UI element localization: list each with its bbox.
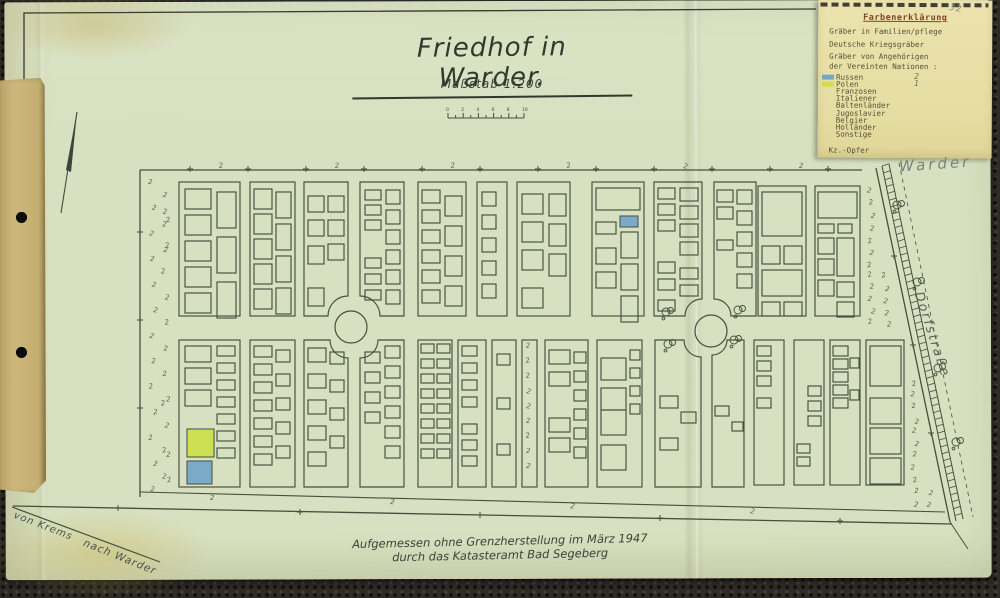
- grave-block-outline: [655, 340, 701, 487]
- road-hatch-tick: [886, 184, 893, 186]
- grave-plot: [482, 215, 496, 229]
- legend-handwritten-count: 1: [914, 80, 919, 87]
- grave-block-outline: [830, 340, 860, 485]
- bush-symbol: 2: [868, 198, 874, 207]
- grave-plot: [217, 346, 235, 356]
- grave-plot: [658, 262, 675, 273]
- grave-plot: [818, 192, 857, 218]
- bush-symbol: 2: [153, 306, 159, 315]
- grave-plot: [818, 224, 834, 233]
- grave-plot: [574, 428, 586, 439]
- road-edge-tail: [950, 522, 968, 549]
- grave-plot: [850, 358, 859, 368]
- scale-label: Maßstab 1:200: [352, 77, 632, 91]
- tree-symbol: [952, 447, 955, 450]
- grave-plot-polen_yellow: [187, 429, 214, 457]
- grave-plot: [276, 288, 291, 314]
- grave-plot: [680, 268, 698, 279]
- bush-symbol: 2: [870, 212, 877, 221]
- bush-symbol: 2: [870, 307, 876, 316]
- road-hatch-line: [882, 166, 956, 521]
- road-hatch-tick: [955, 513, 962, 515]
- grave-plot: [601, 445, 626, 470]
- road-hatch-tick: [895, 225, 902, 227]
- grave-plot: [217, 380, 235, 390]
- grave-plot: [422, 190, 440, 203]
- grave-plot: [717, 240, 733, 250]
- grave-plot: [601, 388, 626, 410]
- grave-plot: [217, 363, 235, 373]
- grave-plot: [330, 408, 344, 420]
- grave-plot: [217, 282, 236, 318]
- legend-group-heading: Gräber von Angehörigen: [829, 53, 992, 62]
- road-hatch-tick: [888, 191, 895, 193]
- grave-plot: [217, 431, 235, 441]
- grave-plot: [837, 238, 854, 276]
- grave-plot: [185, 346, 211, 362]
- bush-symbol: 2: [866, 261, 872, 270]
- grave-plot: [308, 288, 324, 306]
- grave-plot: [385, 446, 400, 458]
- road-hatch-tick: [929, 390, 936, 392]
- grave-plot: [660, 396, 678, 408]
- bush-symbol: 2: [164, 421, 171, 430]
- road-hatch-tick: [885, 178, 892, 180]
- grave-plot: [818, 238, 834, 254]
- grave-plot: [254, 264, 272, 284]
- bush-symbol: 2: [162, 208, 168, 216]
- grave-plot: [497, 398, 510, 409]
- grave-plot: [385, 426, 400, 438]
- grave-plot: [217, 237, 236, 273]
- grave-plot: [421, 389, 434, 398]
- grave-plot: [365, 372, 380, 383]
- tree-symbol: [736, 336, 742, 342]
- grave-plot: [386, 290, 400, 304]
- legend-entry-family-graves: Gräber in Familien/pflege: [829, 28, 992, 37]
- bush-symbol: 2: [914, 487, 920, 495]
- bush-symbol: 2: [162, 370, 168, 378]
- road-hatch-tick: [893, 219, 900, 221]
- grave-plot: [833, 398, 848, 408]
- grave-plot: [717, 207, 733, 219]
- grave-block-outline: [360, 340, 404, 487]
- grave-plot: [797, 457, 810, 466]
- grave-block-outline: [545, 340, 588, 487]
- grave-plot: [630, 350, 640, 360]
- grave-plot: [437, 419, 450, 428]
- road-hatch-tick: [931, 397, 938, 399]
- grave-plot: [421, 359, 434, 368]
- grave-plot: [254, 214, 272, 234]
- grave-plot: [601, 358, 626, 380]
- grave-plot: [784, 302, 802, 316]
- grave-plot: [680, 224, 698, 237]
- grave-plot: [385, 406, 400, 418]
- grave-plot: [462, 456, 477, 466]
- grave-plot: [462, 424, 477, 434]
- tree-symbol: [958, 438, 964, 444]
- grave-plot: [276, 350, 290, 362]
- bush-symbol: 2: [164, 318, 170, 327]
- tree-symbol: [662, 308, 670, 316]
- bush-symbol: 2: [525, 431, 531, 440]
- grave-plot: [276, 374, 290, 386]
- grave-plot: [437, 404, 450, 413]
- legend-entry-label: Sonstige: [836, 130, 872, 139]
- road-hatch-tick: [906, 280, 913, 282]
- grave-plot: [386, 210, 400, 224]
- grave-block-outline: [866, 340, 904, 485]
- bush-symbol: 2: [525, 356, 532, 365]
- bush-symbol: 2: [334, 162, 340, 170]
- bush-symbol: 2: [750, 507, 756, 516]
- grave-plot: [757, 376, 771, 386]
- grave-plot: [837, 302, 854, 317]
- bush-symbol: 2: [570, 502, 576, 511]
- scale-bar-number: 10: [522, 107, 528, 113]
- grave-plot: [308, 400, 326, 414]
- grave-plot: [497, 444, 510, 455]
- legend-swatch: [822, 81, 834, 86]
- grave-plot: [601, 410, 626, 435]
- grave-plot: [422, 270, 440, 283]
- scale-bar-number: 6: [492, 107, 495, 113]
- road-hatch-tick: [932, 404, 939, 406]
- grave-plot: [445, 196, 462, 216]
- bush-symbol: 2: [867, 317, 874, 326]
- survey-crosses: [115, 166, 934, 524]
- bush-symbol: 2: [151, 204, 157, 213]
- grave-plot: [185, 293, 211, 313]
- boundary-bottom-inner: [140, 492, 945, 512]
- scale-bar-number: 0: [446, 107, 449, 113]
- road-hatch-tick: [889, 198, 896, 200]
- bush-symbol: 2: [912, 475, 919, 484]
- grave-plot: [365, 290, 381, 300]
- grave-plot: [850, 390, 859, 400]
- grave-plot: [680, 242, 698, 255]
- bush-symbol: 2: [151, 281, 158, 290]
- bush-symbol: 2: [885, 285, 891, 293]
- grave-plot: [658, 204, 675, 215]
- bush-symbol: 2: [881, 271, 888, 280]
- bush-symbol: 2: [565, 161, 572, 170]
- grave-plot: [630, 368, 640, 378]
- road-hatch-tick: [902, 260, 909, 262]
- grave-plot: [437, 389, 450, 398]
- grave-plot: [365, 412, 380, 423]
- grave-plot: [185, 368, 211, 384]
- grave-plot: [808, 416, 821, 426]
- tree-symbols: [662, 201, 964, 450]
- grave-plot: [757, 346, 771, 356]
- grave-plot: [276, 446, 290, 458]
- grave-plot: [330, 436, 344, 448]
- bush-symbol: 2: [390, 498, 396, 506]
- road-hatch-tick: [901, 253, 908, 255]
- road-hatch-tick: [945, 465, 952, 467]
- bush-symbol: 2: [915, 418, 920, 426]
- road-hatch-tick: [882, 164, 889, 166]
- grave-plot: [185, 390, 211, 406]
- grave-plot: [833, 359, 848, 369]
- tree-symbol: [730, 345, 733, 348]
- road-hatch-tick: [942, 452, 949, 454]
- grave-plot: [658, 300, 675, 311]
- bush-symbol: 2: [153, 460, 159, 469]
- road-hatch-tick: [905, 273, 912, 275]
- grave-plot: [497, 354, 510, 365]
- grave-plot: [421, 344, 434, 353]
- grave-plot: [630, 386, 640, 396]
- grave-plot: [422, 250, 440, 263]
- bush-symbol: 2: [914, 440, 920, 449]
- tree-symbol: [740, 306, 746, 312]
- grave-plot: [838, 224, 852, 233]
- grave-plot: [365, 205, 381, 215]
- road-hatch-tick: [938, 431, 945, 433]
- grave-plot: [308, 246, 324, 264]
- road-hatch-tick: [921, 349, 928, 351]
- road-hatch-tick: [943, 458, 950, 460]
- scale-bar-number: 8: [507, 107, 510, 113]
- road-hatch-tick: [899, 246, 906, 248]
- grave-plot: [308, 452, 326, 466]
- grave-plot: [328, 220, 344, 236]
- bush-symbol: 2: [910, 463, 915, 471]
- grave-plot: [445, 256, 462, 276]
- grave-plot: [574, 390, 586, 401]
- grave-plot: [482, 261, 496, 275]
- grave-plot: [422, 290, 440, 303]
- bush-symbol: 2: [869, 249, 875, 258]
- grave-plot: [254, 382, 272, 393]
- bush-symbol: 2: [148, 433, 154, 442]
- road-hatch-tick: [898, 239, 905, 241]
- bush-symbol: 2: [799, 162, 804, 170]
- grave-plot: [737, 190, 752, 204]
- legend-note: Farbenerklärung Gräber in Familien/pfleg…: [818, 0, 993, 158]
- grave-plot: [217, 448, 235, 458]
- bush-symbol: 2: [166, 475, 173, 484]
- grave-plot: [421, 449, 434, 458]
- grave-plot: [386, 190, 400, 204]
- bush-symbol: 2: [151, 357, 156, 365]
- tree-symbol: [952, 438, 960, 446]
- grave-plot: [462, 380, 477, 390]
- grave-block-outline: [304, 182, 348, 316]
- roundabout-circle: [335, 311, 367, 343]
- grave-block-outline: [794, 340, 824, 485]
- grave-plot: [308, 220, 324, 236]
- road-hatch-tick: [891, 205, 898, 207]
- grave-plot: [254, 239, 272, 259]
- bush-symbol: 2: [867, 270, 874, 279]
- tree-symbol: [899, 201, 905, 207]
- tree-symbol: [913, 278, 921, 286]
- grave-block-outline: [360, 182, 404, 316]
- bush-symbol: 2: [910, 390, 915, 398]
- grave-plot: [462, 397, 477, 407]
- road-hatch-tick: [903, 267, 910, 269]
- grave-plot: [522, 222, 543, 242]
- grave-plot: [386, 230, 400, 244]
- grave-plot: [421, 404, 434, 413]
- grave-plot: [482, 284, 496, 298]
- grave-plot: [421, 374, 434, 383]
- grave-plot: [437, 359, 450, 368]
- grave-plot: [276, 398, 290, 410]
- bush-symbol: 2: [913, 501, 919, 510]
- road-hatch-tick: [949, 486, 956, 488]
- legend-title: Farbenerklärung: [818, 13, 992, 24]
- grave-plot-russen_blue: [187, 461, 212, 484]
- grave-plot: [574, 447, 586, 458]
- bush-symbol: 2: [911, 379, 918, 388]
- grave-plot: [385, 366, 400, 378]
- grave-block-outline: [179, 182, 240, 316]
- grave-plot: [185, 267, 211, 287]
- bush-symbol: 2: [866, 186, 872, 195]
- grave-plot: [717, 190, 733, 202]
- grave-plot: [462, 363, 477, 373]
- tree-symbol: [662, 317, 665, 320]
- bush-symbol: 2: [867, 295, 872, 303]
- road-hatch-tick: [928, 383, 935, 385]
- grave-plot: [365, 274, 381, 284]
- bush-symbol: 2: [926, 501, 932, 510]
- grave-plot: [422, 230, 440, 243]
- grave-plot: [308, 348, 326, 362]
- scale-bar: 0246810: [446, 107, 528, 118]
- grave-plot: [522, 288, 543, 308]
- grave-plot: [437, 344, 450, 353]
- bush-symbol: 2: [148, 229, 155, 238]
- grave-plot: [833, 385, 848, 395]
- grave-plot: [365, 258, 381, 268]
- legend-entry: Sonstige: [836, 131, 992, 139]
- grave-plot: [621, 232, 638, 258]
- road-hatch-tick: [926, 376, 933, 378]
- grave-plot: [522, 250, 543, 270]
- road-hatch-tick: [952, 500, 959, 502]
- bush-symbol: 2: [526, 402, 532, 411]
- bush-symbol: 2: [887, 320, 892, 328]
- scanned-map-photo: 2222222222222222222222222222222222222222…: [0, 0, 1000, 589]
- grave-plot: [870, 428, 901, 454]
- bush-symbol: 2: [164, 293, 170, 302]
- grave-plot: [185, 215, 211, 235]
- grave-plot: [462, 440, 477, 450]
- road-hatch-tick: [941, 445, 948, 447]
- grave-plot: [462, 346, 477, 356]
- grave-plot: [549, 254, 566, 276]
- grave-plot: [217, 414, 235, 424]
- grave-plot: [217, 192, 236, 228]
- tree-symbol: [664, 340, 672, 348]
- road-hatch-tick: [925, 369, 932, 371]
- bush-symbol: 2: [148, 178, 153, 186]
- punch-hole: [16, 347, 27, 358]
- grave-plot: [421, 434, 434, 443]
- punch-hole: [16, 212, 27, 223]
- bush-symbol: 2: [525, 342, 531, 350]
- road-hatch-tick: [919, 342, 926, 344]
- north-arrow-head: [66, 112, 77, 172]
- grave-plot: [549, 350, 570, 364]
- grave-plot: [328, 244, 344, 260]
- tree-symbol: [664, 349, 667, 352]
- road-hatch-tick: [953, 506, 960, 508]
- grave-plot: [386, 270, 400, 284]
- grave-plot: [549, 194, 566, 216]
- grave-plot: [818, 280, 834, 296]
- grave-plot: [185, 189, 211, 209]
- pencil-corner-mark: 32: [948, 3, 963, 15]
- grave-plot: [549, 438, 570, 452]
- grave-plot: [762, 246, 780, 264]
- bush-symbol: 2: [162, 220, 167, 228]
- grave-plot: [445, 226, 462, 246]
- grave-plot: [254, 454, 272, 465]
- bush-symbol: 2: [161, 267, 167, 275]
- road-hatch-tick: [939, 438, 946, 440]
- grave-plot: [757, 361, 771, 371]
- grave-plot: [630, 404, 640, 414]
- road-hatch-tick: [922, 356, 929, 358]
- grave-plot: [445, 286, 462, 306]
- grave-plot: [330, 380, 344, 392]
- grave-plot: [737, 211, 752, 225]
- grave-plot: [422, 210, 440, 223]
- grave-plot: [574, 409, 586, 420]
- bush-symbol: 2: [148, 382, 154, 391]
- grave-plot: [870, 458, 901, 484]
- grave-plot: [482, 192, 496, 206]
- grave-plot: [833, 372, 848, 382]
- grave-strips: [179, 182, 904, 487]
- grave-plot: [254, 289, 272, 309]
- grave-plot: [217, 397, 235, 407]
- grave-plot: [254, 189, 272, 209]
- bush-symbol: 2: [162, 191, 168, 200]
- grave-plot: [762, 302, 780, 316]
- grave-plot: [737, 253, 752, 267]
- grave-plot: [660, 438, 678, 450]
- grave-plot: [549, 224, 566, 246]
- bush-symbol: 2: [153, 408, 159, 416]
- grave-plot: [596, 222, 616, 234]
- grave-plot: [276, 192, 291, 218]
- road-hatch-tick: [933, 410, 940, 412]
- grave-plot: [762, 192, 802, 236]
- grave-plot: [658, 220, 675, 231]
- grave-plot: [254, 346, 272, 357]
- bush-symbol: 2: [867, 237, 874, 246]
- scale-bar-number: 2: [461, 107, 464, 113]
- roundabout-circle: [695, 315, 727, 347]
- grave-plot: [437, 434, 450, 443]
- legend-group-heading: der Vereinten Nationen :: [829, 62, 992, 71]
- road-hatch-tick: [946, 472, 953, 474]
- bush-symbol: 2: [150, 255, 156, 264]
- bush-symbol: 2: [869, 282, 875, 291]
- grave-plot: [762, 270, 802, 296]
- grave-plot: [658, 188, 675, 199]
- scale-bar-number: 4: [476, 107, 479, 113]
- bush-symbol: 2: [218, 161, 224, 170]
